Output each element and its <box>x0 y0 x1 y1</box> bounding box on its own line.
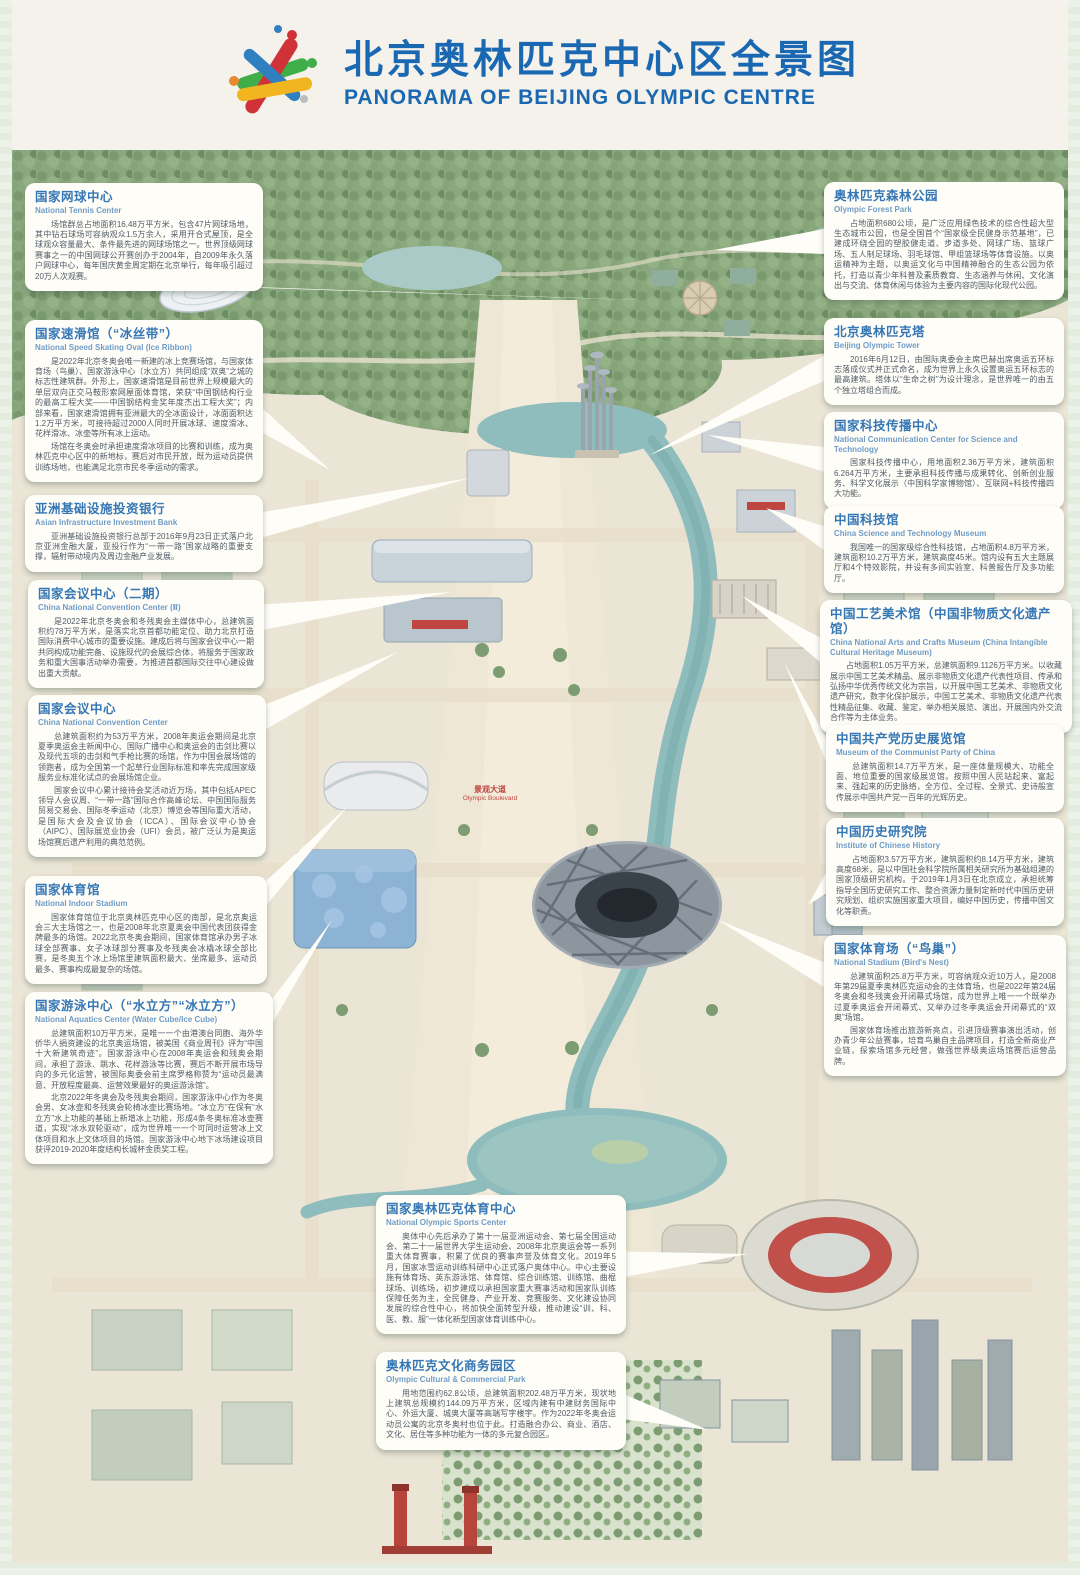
convention-center-2-building <box>372 540 532 582</box>
indoor-stadium-building <box>324 762 428 810</box>
birds-nest-building <box>532 841 722 969</box>
boulevard-label-en: Olympic Boulevard <box>455 795 525 803</box>
convention-center-building <box>384 598 502 642</box>
olympic-sports-center-stadium <box>742 1200 918 1310</box>
water-cube-building <box>294 850 416 948</box>
olympic-centre-logo-icon <box>220 23 324 127</box>
poster-title-zh: 北京奥林匹克中心区全景图 <box>344 40 860 83</box>
sports-center-gymnasium <box>662 1225 737 1263</box>
cpc-history-museum-building <box>767 648 825 680</box>
boulevard-label-zh: 景观大道 <box>455 785 525 795</box>
science-communication-center-building <box>702 422 740 452</box>
poster-page: 景观大道 Olympic Boulevard 国家网球中心National Te… <box>0 0 1080 1575</box>
header: 北京奥林匹克中心区全景图 PANORAMA OF BEIJING OLYMPIC… <box>12 0 1068 150</box>
aiib-building <box>467 450 509 496</box>
poster-title-en: PANORAMA OF BEIJING OLYMPIC CENTRE <box>344 86 860 110</box>
map-art <box>12 150 1068 1563</box>
arts-crafts-museum-building <box>712 580 776 618</box>
boulevard-label: 景观大道 Olympic Boulevard <box>455 785 525 802</box>
map-illustration <box>12 150 1068 1563</box>
science-museum-building <box>737 490 795 532</box>
